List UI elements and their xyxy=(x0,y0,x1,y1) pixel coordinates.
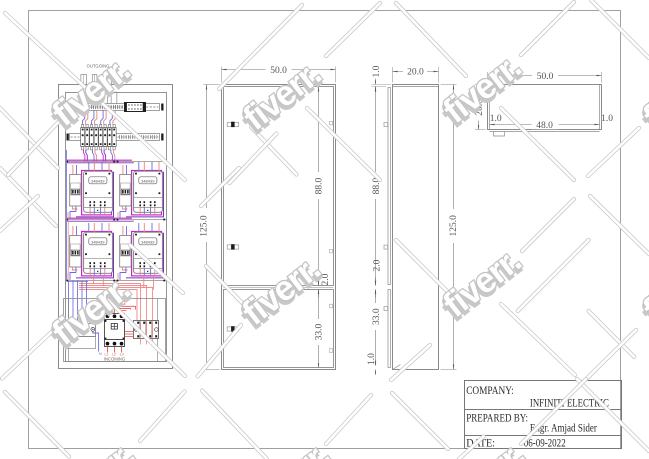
svg-text:1.0: 1.0 xyxy=(372,65,382,77)
svg-text:348439: 348439 xyxy=(91,178,105,183)
svg-text:COMPANY:: COMPANY: xyxy=(466,385,514,397)
svg-text:33.0: 33.0 xyxy=(315,323,325,340)
svg-text:INCOMING: INCOMING xyxy=(104,357,125,362)
svg-text:1.0: 1.0 xyxy=(367,353,377,365)
svg-text:1.0: 1.0 xyxy=(490,114,502,124)
svg-text:125.0: 125.0 xyxy=(199,215,209,237)
svg-text:125.0: 125.0 xyxy=(449,215,459,237)
svg-text:33.0: 33.0 xyxy=(372,308,382,325)
svg-text:PREPARED BY:: PREPARED BY: xyxy=(466,412,528,424)
svg-text:348439: 348439 xyxy=(141,178,155,183)
svg-text:88.0: 88.0 xyxy=(315,177,325,194)
svg-text:1.0: 1.0 xyxy=(601,114,613,124)
svg-text:20.0: 20.0 xyxy=(407,68,424,78)
svg-text:2.0: 2.0 xyxy=(373,259,383,271)
svg-text:06-09-2022: 06-09-2022 xyxy=(524,438,566,450)
svg-text:348439: 348439 xyxy=(141,239,155,244)
svg-text:50.0: 50.0 xyxy=(537,72,554,82)
svg-text:N: N xyxy=(99,352,102,356)
svg-text:348439: 348439 xyxy=(91,239,105,244)
svg-text:48.0: 48.0 xyxy=(536,121,553,131)
